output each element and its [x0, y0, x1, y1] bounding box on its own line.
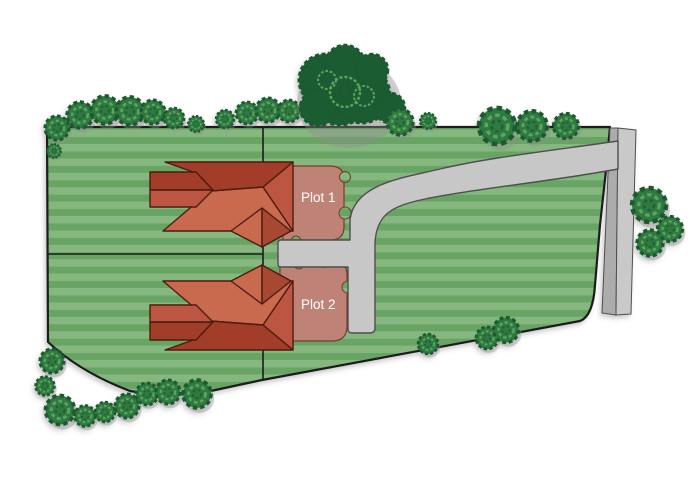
- plot2-label: Plot 2: [301, 297, 336, 312]
- site-plan-canvas: Plot 1 Plot 2: [0, 0, 700, 495]
- site-plan-drawing: Plot 1 Plot 2: [0, 0, 700, 495]
- plot1-label: Plot 1: [301, 190, 336, 205]
- tree-cluster-roadside: [632, 188, 685, 261]
